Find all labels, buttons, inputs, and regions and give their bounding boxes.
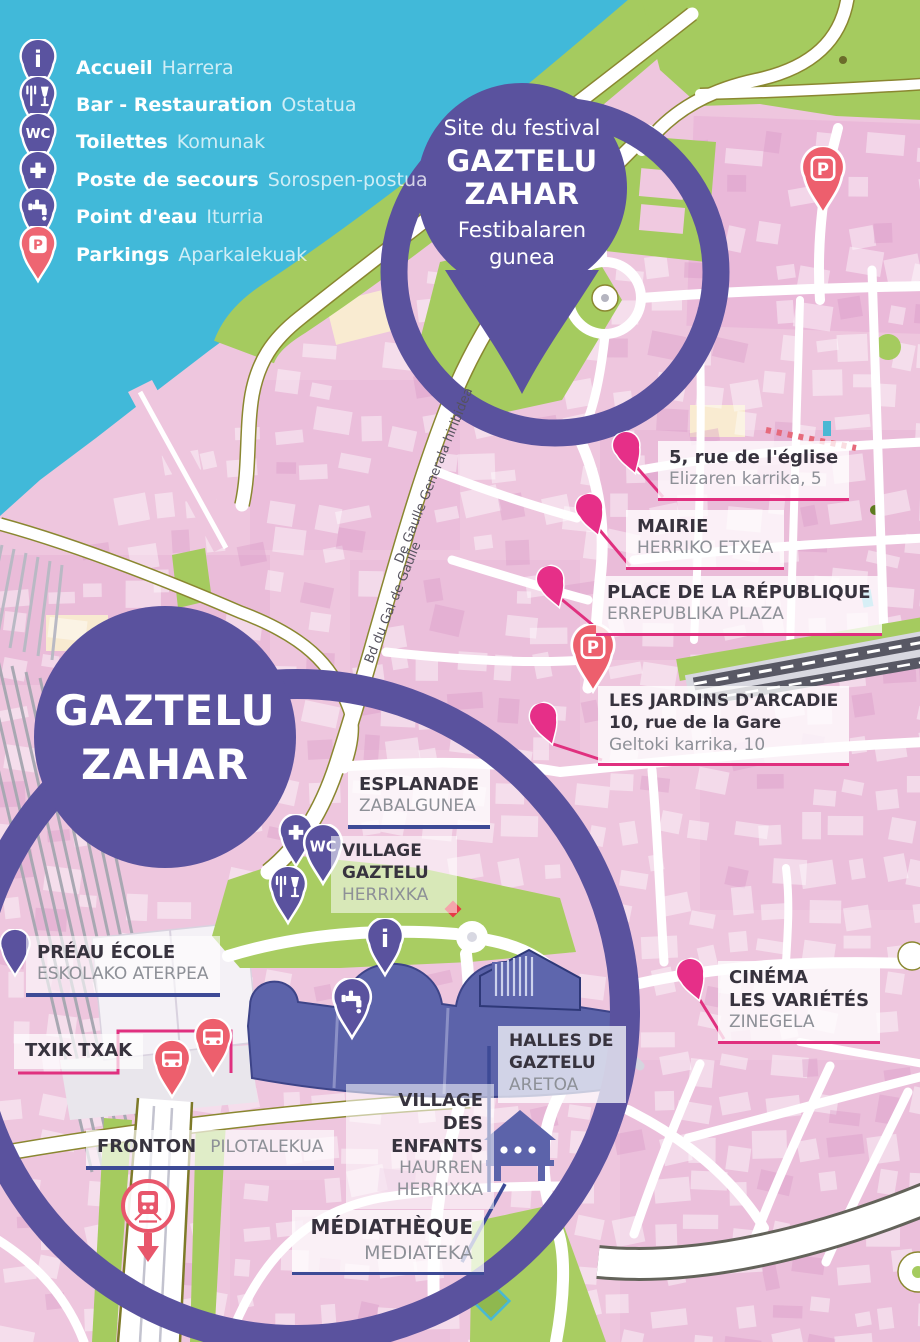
label-fronton: FRONTON PILOTALEKUA [86, 1130, 334, 1170]
site-subtitle: Site du festival [428, 116, 616, 140]
label-mediatheque: MÉDIATHÈQUE MEDIATEKA [292, 1210, 484, 1275]
legend-label-eu: Iturria [206, 206, 263, 228]
label-fr: VILLAGE GAZTELU [342, 841, 446, 885]
label-eu: ERREPUBLIKA PLAZA [607, 604, 871, 626]
label-eu: Elizaren karrika, 5 [669, 469, 838, 491]
bar-pin-icon [266, 866, 310, 926]
label-fr: MAIRIE [637, 515, 773, 538]
legend-label-fr: Parkings [76, 244, 169, 266]
label-village-gaztelu: VILLAGE GAZTELU HERRIXKA [331, 836, 457, 913]
train-icon [116, 1176, 180, 1266]
label-eu: ESKOLAKO ATERPEA [37, 964, 209, 986]
label-fr: LES JARDINS D'ARCADIE [609, 691, 838, 713]
label-fr: TXIK TXAK [25, 1039, 132, 1062]
label-cinema: CINÉMA LES VARIÉTÉS ZINEGELA [718, 961, 880, 1044]
label-esplanade: ESPLANADE ZABALGUNEA [348, 768, 490, 829]
svg-text:WC: WC [26, 126, 51, 142]
festival-map: De Gaulle Generala hiribidea Bd du Gal d… [0, 0, 920, 1342]
label-fr: ESPLANADE [359, 773, 479, 796]
label-eu: MEDIATEKA [303, 1241, 473, 1265]
legend-label-fr: Point d'eau [76, 206, 197, 228]
parking-pin-icon: P [16, 226, 60, 284]
label-republique: PLACE DE LA RÉPUBLIQUE ERREPUBLIKA PLAZA [596, 576, 882, 636]
legend-item-parkings: P ParkingsAparkalekuak [16, 233, 307, 277]
legend-label-fr: Accueil [76, 57, 153, 79]
label-fr: PRÉAU ÉCOLE [37, 941, 209, 964]
svg-text:P: P [817, 160, 829, 179]
bus-pin-icon [191, 1018, 235, 1078]
label-eu: ZINEGELA [729, 1012, 869, 1034]
label-halles: HALLES DE GAZTELU ARETOA [498, 1026, 626, 1103]
svg-text:P: P [33, 238, 43, 254]
water-pin-icon [329, 978, 375, 1041]
label-eu: HERRIKO ETXEA [637, 538, 773, 560]
label-village-enfants: VILLAGE DES ENFANTS HAURREN HERRIXKA [346, 1084, 494, 1209]
label-jardins: LES JARDINS D'ARCADIE 10, rue de la Gare… [598, 686, 849, 766]
label-txik-txak: TXIK TXAK [14, 1034, 143, 1069]
label-eu: ZABALGUNEA [359, 796, 479, 818]
legend-label-eu: Harrera [162, 57, 234, 79]
parking-pin-icon: P [797, 146, 849, 217]
label-fr: CINÉMA [729, 966, 869, 989]
label-fr: LES VARIÉTÉS [729, 989, 869, 1012]
legend-label-eu: Ostatua [281, 94, 356, 116]
legend-label-eu: Aparkalekuak [178, 244, 307, 266]
bus-pin-icon [150, 1040, 194, 1100]
site-subtitle-eu: Festibalarengunea [428, 217, 616, 271]
legend-label-eu: Komunak [177, 131, 265, 153]
legend-label-eu: Sorospen-postua [268, 169, 428, 191]
label-mairie: MAIRIE HERRIKO ETXEA [626, 510, 784, 570]
site-circle-text: GAZTELU ZAHAR [40, 684, 290, 792]
label-eu: HERRIXKA [342, 885, 446, 907]
label-fr: HALLES DE GAZTELU [509, 1031, 615, 1075]
label-eu: PILOTALEKUA [210, 1137, 323, 1157]
label-fr: MÉDIATHÈQUE [303, 1215, 473, 1241]
legend-label-fr: Poste de secours [76, 169, 259, 191]
legend-label-fr: Toilettes [76, 131, 168, 153]
label-fr: VILLAGE DES ENFANTS [357, 1089, 483, 1158]
label-fr: 10, rue de la Gare [609, 713, 838, 735]
svg-text:i: i [34, 46, 42, 73]
svg-text:i: i [381, 925, 389, 953]
label-eglise: 5, rue de l'église Elizaren karrika, 5 [658, 441, 849, 501]
legend-label-fr: Bar - Restauration [76, 94, 272, 116]
label-fr: 5, rue de l'église [669, 446, 838, 469]
label-eu: Geltoki karrika, 10 [609, 735, 838, 757]
label-eu: ARETOA [509, 1075, 615, 1097]
label-fr: PLACE DE LA RÉPUBLIQUE [607, 581, 871, 604]
info-pin-icon: i [363, 918, 407, 978]
svg-text:P: P [587, 638, 599, 657]
festival-site-pin-text: Site du festival GAZTELU ZAHAR Festibala… [428, 116, 616, 271]
site-title: GAZTELU [428, 145, 616, 178]
label-fr: FRONTON [97, 1136, 196, 1157]
site-title: ZAHAR [428, 178, 616, 211]
label-eu: HAURREN HERRIXKA [357, 1158, 483, 1202]
label-preau-ecole: PRÉAU ÉCOLE ESKOLAKO ATERPEA [26, 936, 220, 997]
